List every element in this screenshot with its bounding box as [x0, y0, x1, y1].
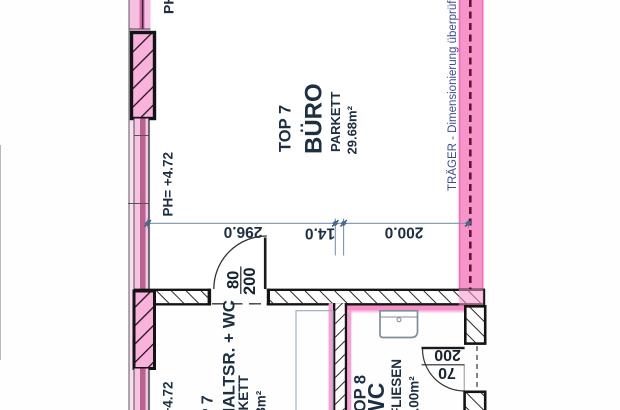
- svg-text:200: 200: [241, 267, 259, 295]
- svg-text:70: 70: [438, 364, 456, 381]
- svg-text:PH= +4.72: PH= +4.72: [161, 152, 176, 217]
- svg-text:FLIESEN: FLIESEN: [389, 359, 404, 410]
- svg-text:TOP 7: TOP 7: [200, 395, 217, 410]
- svg-text:200: 200: [434, 346, 461, 363]
- svg-text:17.53m²: 17.53m²: [254, 390, 269, 410]
- svg-text:BÜRO: BÜRO: [301, 83, 328, 154]
- svg-text:7.00m²: 7.00m²: [407, 376, 422, 410]
- svg-text:PH= +4.72: PH= +4.72: [161, 0, 177, 14]
- svg-text:80: 80: [225, 271, 243, 289]
- svg-text:TOP 7: TOP 7: [277, 105, 295, 152]
- svg-text:PARKETT: PARKETT: [328, 92, 343, 152]
- svg-text:WC: WC: [363, 383, 389, 410]
- svg-text:PARKETT: PARKETT: [236, 374, 251, 410]
- svg-text:PH= +4.72: PH= +4.72: [161, 381, 176, 410]
- svg-text:29.68m²: 29.68m²: [345, 105, 360, 154]
- svg-text:TRÄGER - Dimensionierung überp: TRÄGER - Dimensionierung überprüfen: [447, 0, 459, 191]
- svg-text:14.0: 14.0: [305, 225, 335, 242]
- svg-text:200.0: 200.0: [385, 224, 424, 241]
